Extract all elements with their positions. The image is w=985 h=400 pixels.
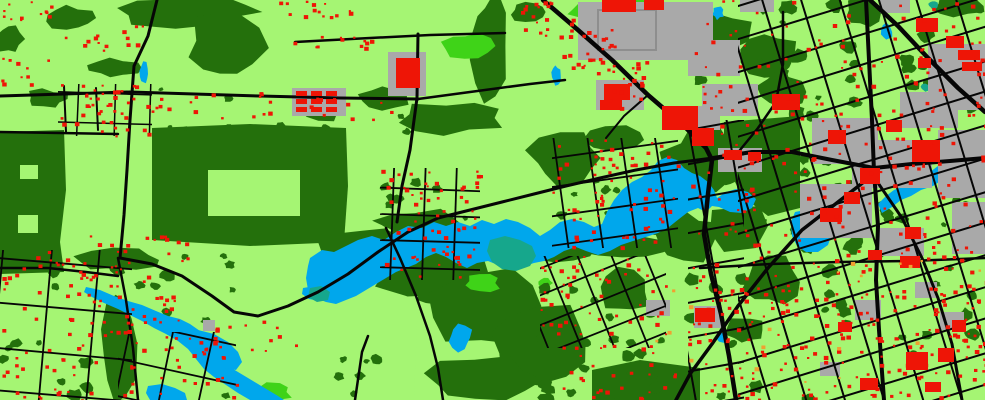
land-cover-map[interactable] [0, 0, 985, 400]
land-cover-map-viewport[interactable] [0, 0, 985, 400]
